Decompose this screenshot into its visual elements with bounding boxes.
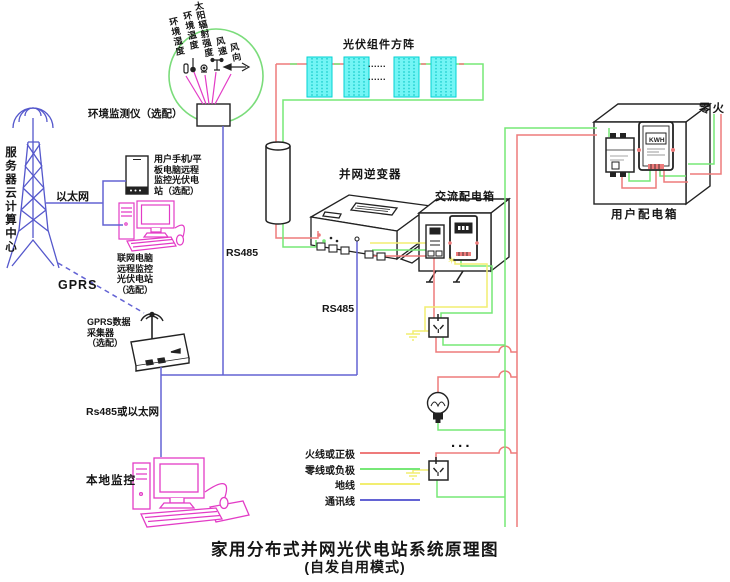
local-pc bbox=[133, 458, 249, 527]
gprs-collector-label: GPRS数据 采集器 （选配） bbox=[87, 317, 131, 349]
ethernet-label: 以太网 bbox=[56, 188, 89, 204]
legend-line-comm bbox=[360, 499, 420, 501]
dc-conduit-cylinder bbox=[266, 142, 290, 224]
diagram-svg: ...... ...... bbox=[0, 0, 730, 582]
legend-label-live: 火线或正极 bbox=[283, 446, 355, 461]
light-bulb bbox=[428, 393, 449, 424]
legend-line-ground bbox=[360, 483, 420, 485]
phone-label: 用户手机/平 板电脑远程 监控光伏电 站（选配） bbox=[154, 154, 202, 196]
env-monitor-label: 环境监测仪（选配） bbox=[88, 106, 183, 121]
radiation-sensor-icon bbox=[201, 65, 207, 72]
pv-panel bbox=[344, 57, 369, 97]
ac-box-label: 交流配电箱 bbox=[435, 188, 495, 204]
legend-line-neutral bbox=[360, 468, 420, 470]
sensor-fan-lines bbox=[186, 72, 231, 104]
thermometer-icon bbox=[191, 58, 195, 72]
legend-label-comm: 通讯线 bbox=[283, 493, 355, 508]
meter-display: KWH bbox=[649, 137, 665, 144]
user-box-label: 用户配电箱 bbox=[611, 206, 679, 222]
rs485-upper-label: RS485 bbox=[226, 247, 258, 259]
cloud-center-label: 服务器云计算中心 bbox=[2, 146, 18, 256]
schematic-page: ...... ...... bbox=[0, 0, 730, 582]
smartphone bbox=[126, 156, 148, 194]
inverter-label: 并网逆变器 bbox=[339, 166, 402, 182]
ac-breaker bbox=[426, 225, 444, 258]
env-sensor-box bbox=[197, 104, 230, 126]
ac-ground-star: ✶ bbox=[447, 255, 456, 267]
pv-array-label: 光伏组件方阵 bbox=[343, 36, 415, 52]
rs485-lower-label: RS485 bbox=[322, 303, 354, 315]
remote-pc bbox=[119, 201, 184, 251]
legend-label-neutral: 零线或负极 bbox=[283, 462, 355, 477]
pv-more-dots: ...... bbox=[368, 72, 386, 82]
ac-energy-meter bbox=[448, 216, 479, 260]
pv-panel bbox=[307, 57, 332, 97]
wall-outlet-1 bbox=[429, 314, 448, 337]
humidity-sensor-icon bbox=[184, 64, 188, 73]
legend-label-ground: 地线 bbox=[283, 477, 355, 492]
gprs-collector bbox=[131, 313, 189, 372]
local-monitor-label: 本地监控 bbox=[86, 472, 136, 488]
rs485-or-ethernet-label: Rs485或以太网 bbox=[86, 404, 159, 419]
mains-label: 零火 bbox=[699, 100, 726, 116]
rs485-port bbox=[355, 237, 359, 241]
more-loads-dots: ... bbox=[451, 434, 473, 451]
remote-pc-label: 联网电脑 远程监控 光伏电站 （选配） bbox=[117, 253, 153, 295]
page-subtitle: (自发自用模式) bbox=[115, 557, 595, 577]
wall-outlet-2 bbox=[429, 457, 448, 480]
pv-panel bbox=[431, 57, 456, 97]
user-energy-meter bbox=[637, 122, 675, 170]
pv-panel bbox=[394, 57, 419, 97]
gprs-label: GPRS bbox=[58, 278, 97, 292]
legend-line-live bbox=[360, 452, 420, 454]
user-breaker bbox=[606, 133, 634, 177]
pv-more-dots: ...... bbox=[368, 59, 386, 69]
